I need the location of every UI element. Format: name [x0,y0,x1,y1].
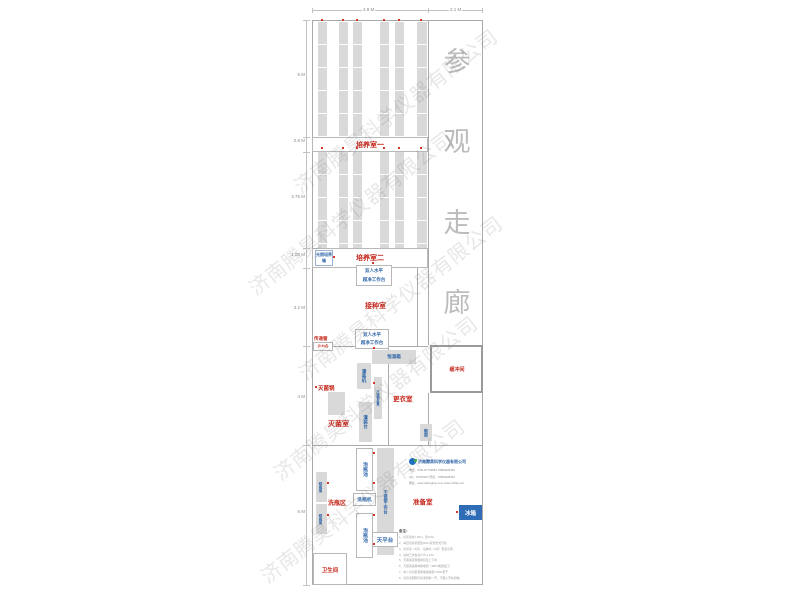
marker-dot [373,543,375,545]
balance-table-label: 天平台 [377,536,394,544]
dim-tick [303,20,310,21]
filling-machine-label: 灌装机 [361,369,367,383]
marker-dot [356,19,358,21]
fridge-label: 冰箱 [465,509,476,517]
floor-plan-canvas: 4.8 M 2.1 M 培养室一 培养室二 光照培养箱 参 观 走 廊 双人水平… [0,0,800,600]
company-contact-line: QQ：87907467 传真：15866625352 [409,474,481,481]
wall-lower-section [312,445,483,446]
marker-dot [327,482,329,484]
bottle-rack-1: 晾瓶架 [316,472,327,502]
soak-pool-label: 泡瓶池 [361,528,368,542]
marker-dot [321,19,323,21]
notes-block: 备注： 1、培养架长1.25m，宽0.5m2、每层培养架配置30cm双管荧光灯架… [399,529,479,582]
dim-tick [303,268,310,269]
balance-table-box: 天平台 [372,532,398,547]
dim-tick [482,8,483,13]
marker-dot [373,347,375,349]
shelf-rack [318,22,327,137]
company-contact-line: 网址：www.sdtenghao.com www.cnthkj.com [409,480,481,487]
dim-tick [312,8,313,13]
dim-label-left: 6 M [282,509,306,514]
note-item: 8、培养室照明灯具须控制一开，不要小开关控制。 [399,576,479,582]
marker-dot [383,19,385,21]
room-label-buffer: 缓冲间 [440,366,474,373]
dim-label-top-2: 2.1 M [449,7,462,12]
shelf-rack [339,22,348,137]
sterilizer-label: 灭菌锅 [318,384,335,392]
marker-dot [383,147,385,149]
bottle-rack-label: 晾瓶架 [319,482,324,493]
fridge-box: 冰箱 [459,505,482,520]
marker-dot [333,256,335,258]
dim-label-left: 5 M [282,72,306,77]
marker-dot [398,19,400,21]
room-label-preparation: 准备室 [413,496,433,506]
clean-bench-line1: 双人水平 [365,267,383,275]
dim-label-left: 3.2 M [282,305,306,310]
notes-header: 备注： [399,529,479,534]
clean-bench-1: 双人水平 超净工作台 [356,265,392,286]
dim-line-left [306,20,307,585]
marker-dot [373,452,375,454]
clean-bench-label: 双人水平 超净工作台 [357,266,391,285]
dim-label-top-1: 4.8 M [362,7,375,12]
notes-list: 1、培养架长1.25m，宽0.5m2、每层培养架配置30cm双管荧光灯架3、培养… [399,535,479,582]
marker-dot [372,262,374,264]
marker-dot [420,19,422,21]
room-label-toilet: 卫生间 [315,566,345,574]
dim-label-left: 0.6 M [282,138,306,143]
dim-tick [303,585,310,586]
dim-tick [303,346,310,347]
dim-tick [303,152,310,153]
marker-dot [456,511,458,513]
clean-bench-line2: 超净工作台 [363,276,386,284]
dim-tick [428,8,429,13]
marker-dot [342,19,344,21]
room-label-cultivation2: 培养室二 [340,253,400,263]
soak-pool-label: 泡瓶池 [361,462,368,476]
marker-dot [373,514,375,516]
marker-dot [315,386,317,388]
marker-dot [398,147,400,149]
dim-label-left: 4 M [282,394,306,399]
